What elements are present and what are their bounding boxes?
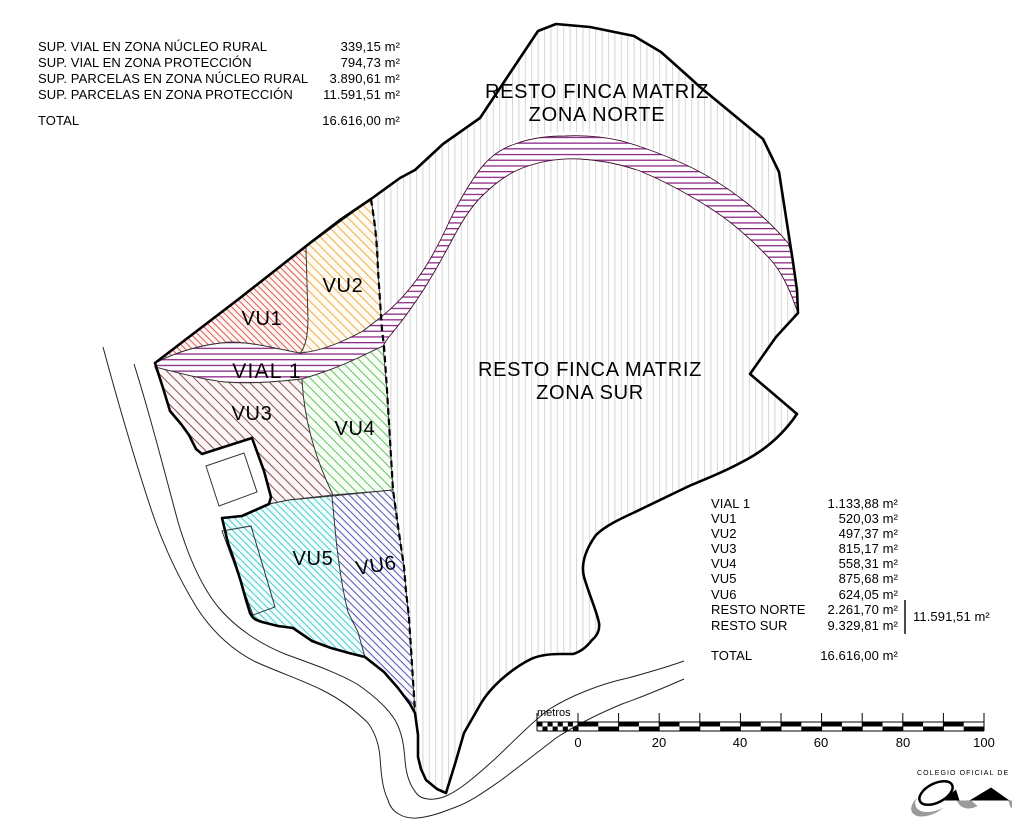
svg-text:100: 100: [973, 735, 995, 750]
svg-text:11.591,51 m²: 11.591,51 m²: [323, 87, 400, 102]
svg-text:60: 60: [814, 735, 828, 750]
svg-text:80: 80: [896, 735, 910, 750]
svg-text:RESTO FINCA MATRIZ: RESTO FINCA MATRIZ: [478, 359, 702, 381]
svg-text:VU2: VU2: [711, 526, 737, 541]
svg-text:RESTO FINCA MATRIZ: RESTO FINCA MATRIZ: [485, 81, 709, 103]
svg-text:497,37 m²: 497,37 m²: [839, 526, 899, 541]
svg-text:SUP. VIAL EN ZONA NÚCLEO RURAL: SUP. VIAL EN ZONA NÚCLEO RURAL: [38, 39, 267, 54]
svg-text:TOTAL: TOTAL: [711, 648, 752, 663]
svg-text:558,31 m²: 558,31 m²: [839, 556, 899, 571]
svg-text:SUP. VIAL EN ZONA PROTECCIÓN: SUP. VIAL EN ZONA PROTECCIÓN: [38, 55, 252, 70]
svg-text:VIAL 1: VIAL 1: [232, 360, 301, 383]
svg-text:SUP. PARCELAS EN ZONA NÚCLEO R: SUP. PARCELAS EN ZONA NÚCLEO RURAL: [38, 71, 308, 86]
svg-text:16.616,00 m²: 16.616,00 m²: [322, 113, 400, 128]
svg-text:metros: metros: [537, 707, 571, 719]
svg-text:RESTO NORTE: RESTO NORTE: [711, 602, 806, 617]
svg-text:COLEGIO OFICIAL DE AR: COLEGIO OFICIAL DE AR: [917, 770, 1012, 777]
svg-text:339,15 m²: 339,15 m²: [341, 39, 401, 54]
svg-text:0: 0: [574, 735, 581, 750]
svg-text:RESTO SUR: RESTO SUR: [711, 618, 788, 633]
svg-text:VU3: VU3: [711, 541, 737, 556]
svg-text:11.591,51 m²: 11.591,51 m²: [913, 609, 990, 624]
svg-text:ZONA NORTE: ZONA NORTE: [529, 104, 666, 126]
svg-text:VU1: VU1: [241, 308, 282, 330]
svg-text:875,68 m²: 875,68 m²: [839, 571, 899, 586]
svg-text:TOTAL: TOTAL: [38, 113, 79, 128]
svg-text:VU3: VU3: [231, 403, 272, 425]
svg-text:VU5: VU5: [292, 548, 333, 570]
svg-text:VU4: VU4: [711, 556, 737, 571]
svg-text:VU1: VU1: [711, 511, 737, 526]
svg-text:VU2: VU2: [322, 275, 363, 297]
svg-text:2.261,70 m²: 2.261,70 m²: [828, 602, 899, 617]
svg-text:624,05 m²: 624,05 m²: [839, 587, 899, 602]
svg-text:16.616,00 m²: 16.616,00 m²: [820, 648, 898, 663]
svg-text:ZONA SUR: ZONA SUR: [536, 382, 644, 404]
svg-text:815,17 m²: 815,17 m²: [839, 541, 899, 556]
svg-text:SUP. PARCELAS EN ZONA PROTECCI: SUP. PARCELAS EN ZONA PROTECCIÓN: [38, 87, 293, 102]
svg-text:1.133,88 m²: 1.133,88 m²: [828, 496, 899, 511]
svg-text:794,73 m²: 794,73 m²: [341, 55, 401, 70]
svg-text:VU4: VU4: [334, 418, 375, 440]
svg-text:VIAL 1: VIAL 1: [711, 496, 750, 511]
svg-text:9.329,81 m²: 9.329,81 m²: [828, 618, 899, 633]
svg-text:520,03 m²: 520,03 m²: [839, 511, 899, 526]
svg-text:VU6: VU6: [711, 587, 737, 602]
svg-text:40: 40: [733, 735, 747, 750]
svg-text:20: 20: [652, 735, 666, 750]
svg-text:VU5: VU5: [711, 571, 737, 586]
svg-text:3.890,61 m²: 3.890,61 m²: [330, 71, 401, 86]
